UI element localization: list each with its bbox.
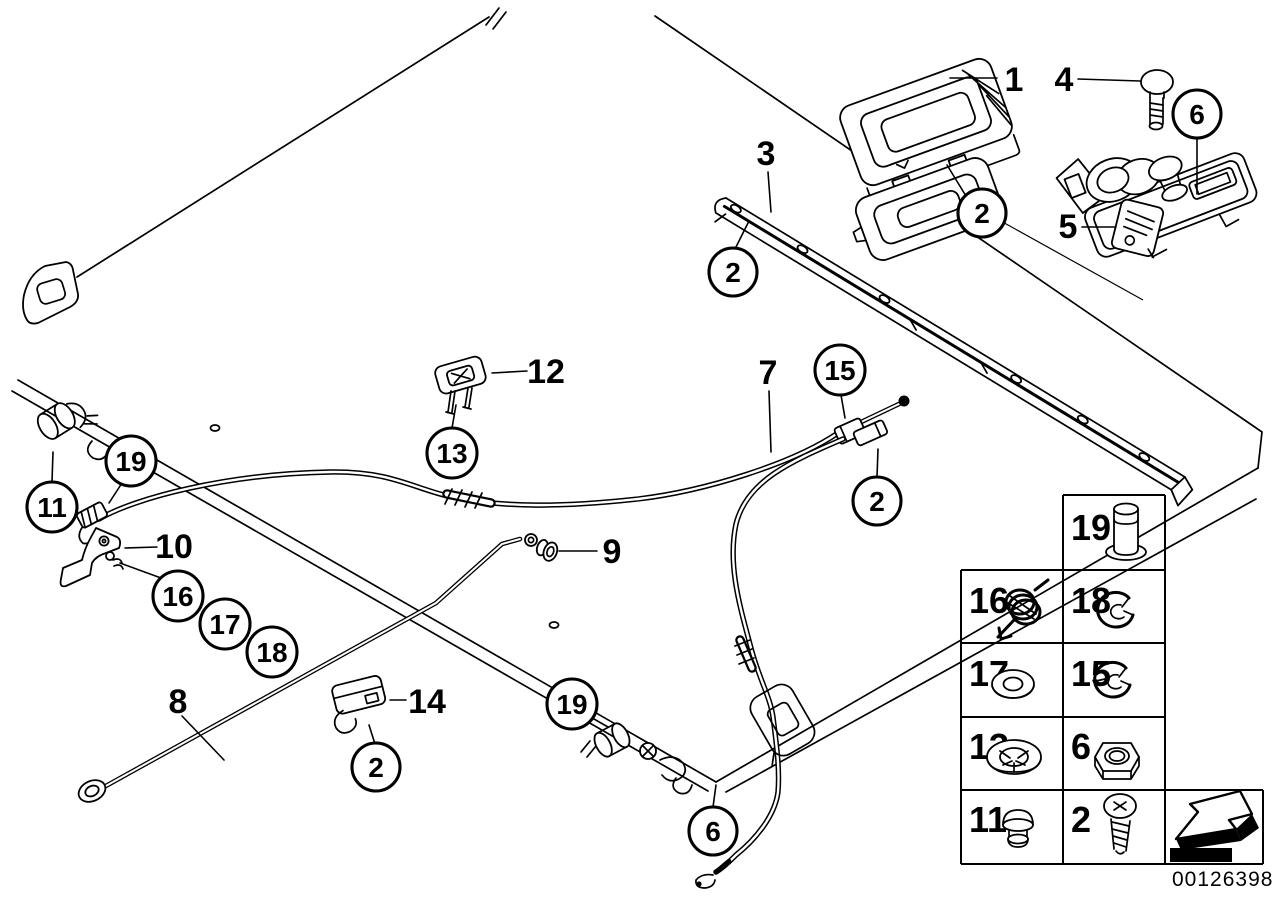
knob-pin-part — [1141, 70, 1173, 130]
callout-11[interactable]: 11 — [27, 482, 77, 532]
svg-text:2: 2 — [974, 198, 990, 229]
svg-text:7: 7 — [759, 354, 778, 392]
lock-washer-icon — [987, 740, 1041, 774]
svg-text:19: 19 — [1071, 507, 1111, 548]
legend-cell-2[interactable]: 2 — [1071, 794, 1136, 854]
legend-cell-11[interactable]: 11 — [969, 799, 1033, 847]
legend-cell-15[interactable]: 15 — [1071, 653, 1130, 697]
legend-cell-16[interactable]: 16 — [969, 580, 1048, 639]
legend-cell-17[interactable]: 17 — [969, 653, 1034, 698]
svg-text:19: 19 — [556, 689, 587, 720]
parts-diagram-page: 1 4 6 3 2 5 2 12 13 7 15 2 19 11 10 16 1… — [0, 0, 1288, 910]
legend-cell-6[interactable]: 6 — [1071, 726, 1139, 779]
latch-lever-hardware — [581, 721, 692, 794]
washer-icon — [992, 670, 1034, 698]
callout-7[interactable]: 7 — [759, 354, 778, 392]
svg-text:6: 6 — [1071, 726, 1091, 767]
clip-part-12 — [434, 355, 488, 414]
callout-17[interactable]: 17 — [200, 599, 250, 649]
svg-text:10: 10 — [155, 528, 193, 566]
callout-18[interactable]: 18 — [247, 627, 297, 677]
hex-nut-icon — [1095, 743, 1139, 779]
callout-4[interactable]: 4 — [1055, 61, 1074, 99]
e-clip-icon — [1098, 592, 1133, 627]
svg-text:2: 2 — [725, 257, 741, 288]
legend-cell-19[interactable]: 19 — [1071, 504, 1146, 561]
callout-12[interactable]: 12 — [527, 353, 565, 391]
svg-text:8: 8 — [169, 683, 188, 721]
drawing-number: 00126398 — [1172, 868, 1273, 891]
svg-text:9: 9 — [603, 533, 622, 571]
release-lever-part — [61, 528, 123, 586]
svg-text:13: 13 — [436, 438, 467, 469]
svg-text:19: 19 — [115, 446, 146, 477]
legend-cell-13[interactable]: 13 — [969, 726, 1041, 774]
callout-19-left[interactable]: 19 — [106, 436, 156, 486]
callout-9[interactable]: 9 — [603, 533, 622, 571]
leader-lines — [52, 78, 1197, 807]
callout-8[interactable]: 8 — [169, 683, 188, 721]
svg-text:4: 4 — [1055, 61, 1074, 99]
svg-text:17: 17 — [209, 609, 240, 640]
callout-14[interactable]: 14 — [408, 683, 446, 721]
plug-icon — [1003, 810, 1033, 847]
callout-2-clip[interactable]: 2 — [352, 743, 400, 791]
callout-5[interactable]: 5 — [1059, 208, 1078, 246]
callout-16[interactable]: 16 — [153, 571, 203, 621]
screw-icon — [1104, 794, 1136, 854]
svg-text:12: 12 — [527, 353, 565, 391]
svg-text:16: 16 — [162, 581, 193, 612]
pull-rod-part — [75, 539, 520, 806]
svg-text:15: 15 — [824, 355, 855, 386]
svg-text:18: 18 — [1071, 580, 1111, 621]
svg-text:16: 16 — [969, 580, 1009, 621]
callout-2-bracket[interactable]: 2 — [853, 477, 901, 525]
callout-3[interactable]: 3 — [757, 135, 776, 173]
svg-text:2: 2 — [1071, 799, 1091, 840]
svg-text:15: 15 — [1071, 653, 1111, 694]
callout-2-gasket[interactable]: 2 — [958, 189, 1006, 237]
svg-text:2: 2 — [869, 486, 885, 517]
svg-text:11: 11 — [37, 492, 67, 523]
callout-6-top[interactable]: 6 — [1173, 90, 1221, 138]
callout-2-rail[interactable]: 2 — [709, 248, 757, 296]
callout-10[interactable]: 10 — [155, 528, 193, 566]
svg-text:18: 18 — [256, 637, 287, 668]
svg-text:11: 11 — [969, 799, 1007, 840]
svg-text:6: 6 — [1189, 99, 1205, 130]
direction-arrow-icon — [1170, 791, 1259, 862]
svg-text:2: 2 — [368, 752, 384, 783]
e-clip-icon — [1095, 662, 1130, 697]
legend-cell-18[interactable]: 18 — [1071, 580, 1133, 627]
callout-19-bottom[interactable]: 19 — [547, 679, 597, 729]
clevis-pin-icon — [1106, 504, 1146, 561]
svg-text:3: 3 — [757, 135, 776, 173]
svg-text:5: 5 — [1059, 208, 1078, 246]
svg-text:14: 14 — [408, 683, 446, 721]
rod-end-bushing-part — [525, 534, 560, 563]
clip-part-14 — [326, 675, 391, 735]
svg-text:6: 6 — [705, 816, 721, 847]
callout-1[interactable]: 1 — [1005, 61, 1024, 99]
callout-13[interactable]: 13 — [427, 428, 477, 478]
callout-6-bottom[interactable]: 6 — [689, 807, 737, 855]
exploded-parts-diagram: 1 4 6 3 2 5 2 12 13 7 15 2 19 11 10 16 1… — [0, 0, 1288, 910]
svg-text:1: 1 — [1005, 61, 1024, 99]
callout-15[interactable]: 15 — [815, 345, 865, 395]
